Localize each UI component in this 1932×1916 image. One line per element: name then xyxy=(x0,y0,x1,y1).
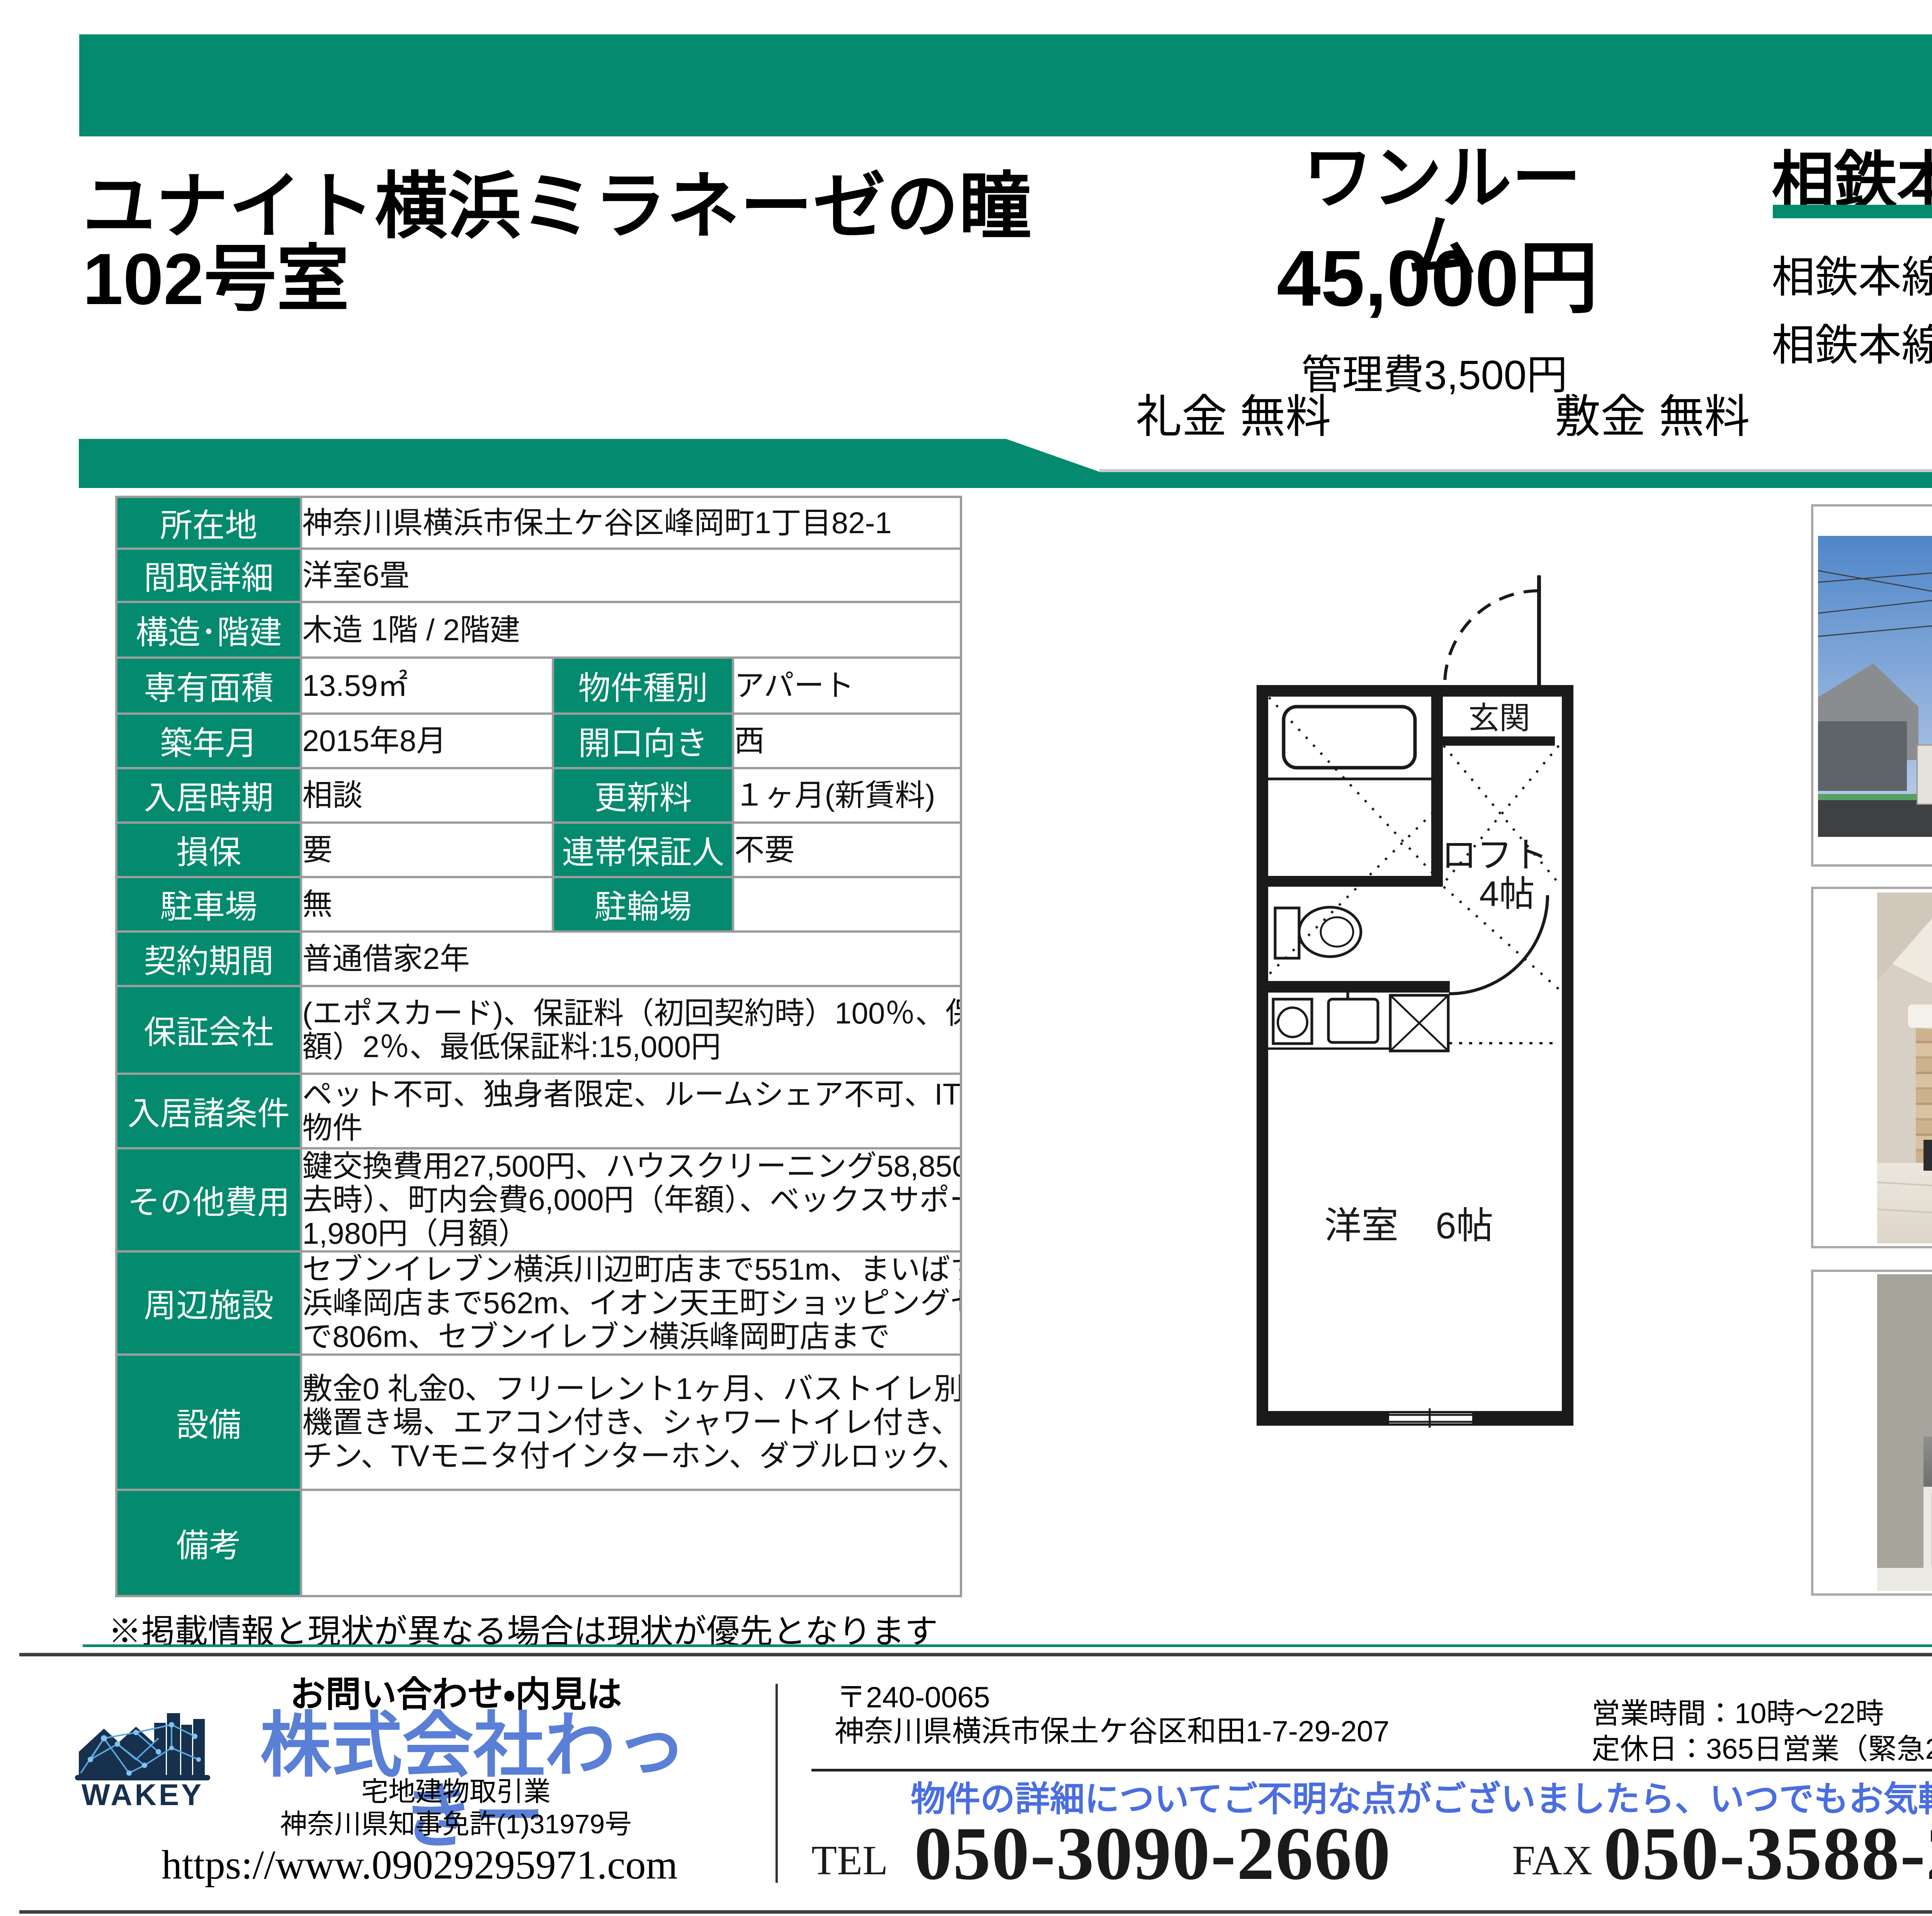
svg-text:4帖: 4帖 xyxy=(1479,874,1534,914)
svg-text:ロフト: ロフト xyxy=(1441,836,1548,875)
svg-text:玄関: 玄関 xyxy=(1468,701,1530,735)
svg-text:WAKEY: WAKEY xyxy=(82,1778,204,1810)
svg-text:洋室 6帖: 洋室 6帖 xyxy=(1324,1205,1493,1246)
